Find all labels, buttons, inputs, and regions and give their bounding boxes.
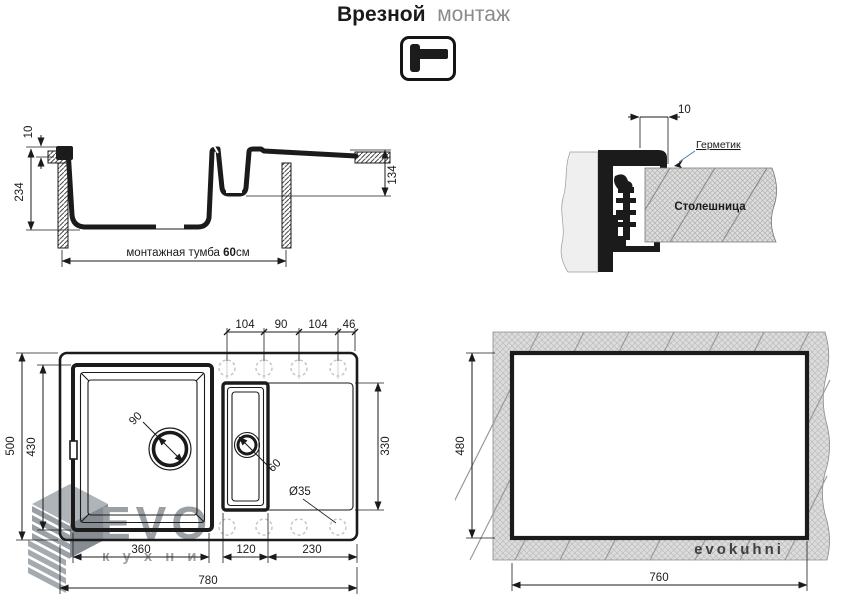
- sink-top-view: 90 60: [0, 315, 440, 600]
- tap-hole-dim: Ø35: [289, 486, 336, 523]
- page-title: Врезной монтаж: [0, 3, 847, 27]
- dim-760-label: 760: [649, 572, 668, 584]
- dim-chain-top: 104 90 104 46: [224, 319, 358, 361]
- dim-overhang-label: 10: [23, 126, 35, 139]
- dim-780-label: 780: [198, 575, 217, 587]
- dim-depth-label: 234: [14, 182, 26, 202]
- dim-480: 480: [455, 353, 495, 538]
- dim-right-depth-label: 134: [387, 165, 399, 185]
- dim-430-label: 430: [26, 437, 38, 456]
- dim-104a: 104: [235, 319, 255, 331]
- dim-104b: 104: [308, 319, 328, 331]
- dim-500-label: 500: [5, 436, 17, 455]
- cross-section-view: 10 234 134 монтажная тумба 60см: [10, 100, 430, 290]
- dim-120-label: 120: [236, 544, 255, 556]
- dim-46: 46: [343, 319, 356, 331]
- main-drain-dim: 90: [127, 410, 145, 428]
- overflow-slot: [70, 441, 77, 459]
- countertop-label: Столешница: [674, 201, 746, 213]
- sealant-label: Герметик: [696, 139, 741, 151]
- dim-cabinet: монтажная тумба 60см: [62, 247, 286, 267]
- dim-gap-label: 10: [678, 104, 691, 116]
- cutout-view: evokuhni 480 760: [455, 325, 847, 597]
- cabinet-walls: [58, 163, 291, 248]
- countertop-block: Столешница: [645, 168, 777, 242]
- dim-360-label: 360: [131, 544, 150, 556]
- cabinet-label-size: 60: [223, 247, 236, 259]
- countertop-surface: evokuhni: [455, 332, 830, 560]
- mounting-detail-view: Столешница 10 Герметик: [530, 88, 847, 288]
- cabinet-label-suffix: см: [236, 247, 250, 259]
- sink-outline: [60, 353, 357, 540]
- dim-330: 330: [355, 383, 392, 510]
- flush-mount-icon: [400, 36, 456, 81]
- dim-480-label: 480: [455, 436, 467, 455]
- flush-mount-icon-glyph: [403, 39, 453, 78]
- dim-430: 430: [26, 365, 71, 530]
- dim-230-label: 230: [302, 544, 321, 556]
- title-bold: Врезной: [337, 3, 426, 26]
- dim-chain-bottom: 360 120 230: [73, 513, 357, 563]
- cabinet-label-prefix: монтажная тумба: [126, 247, 223, 259]
- cabinet-label: монтажная тумба 60см: [126, 247, 249, 259]
- sealant-callout: Герметик: [674, 139, 741, 168]
- main-bowl: 90: [70, 365, 212, 530]
- tap-holes-top: [219, 357, 346, 379]
- tap-holes-bottom: [219, 519, 346, 535]
- cutout-opening: [512, 353, 807, 538]
- tap-hole-label: Ø35: [289, 486, 311, 498]
- cutout-watermark: evokuhni: [694, 541, 784, 558]
- sink-profile: [56, 146, 356, 229]
- drainboard-region: [223, 383, 353, 510]
- title-light-word: монтаж: [437, 3, 510, 26]
- page: Врезной монтаж EVO к у х н и: [0, 0, 847, 600]
- dim-90: 90: [275, 319, 288, 331]
- dim-330-label: 330: [380, 436, 392, 455]
- small-bowl: 60: [223, 383, 284, 510]
